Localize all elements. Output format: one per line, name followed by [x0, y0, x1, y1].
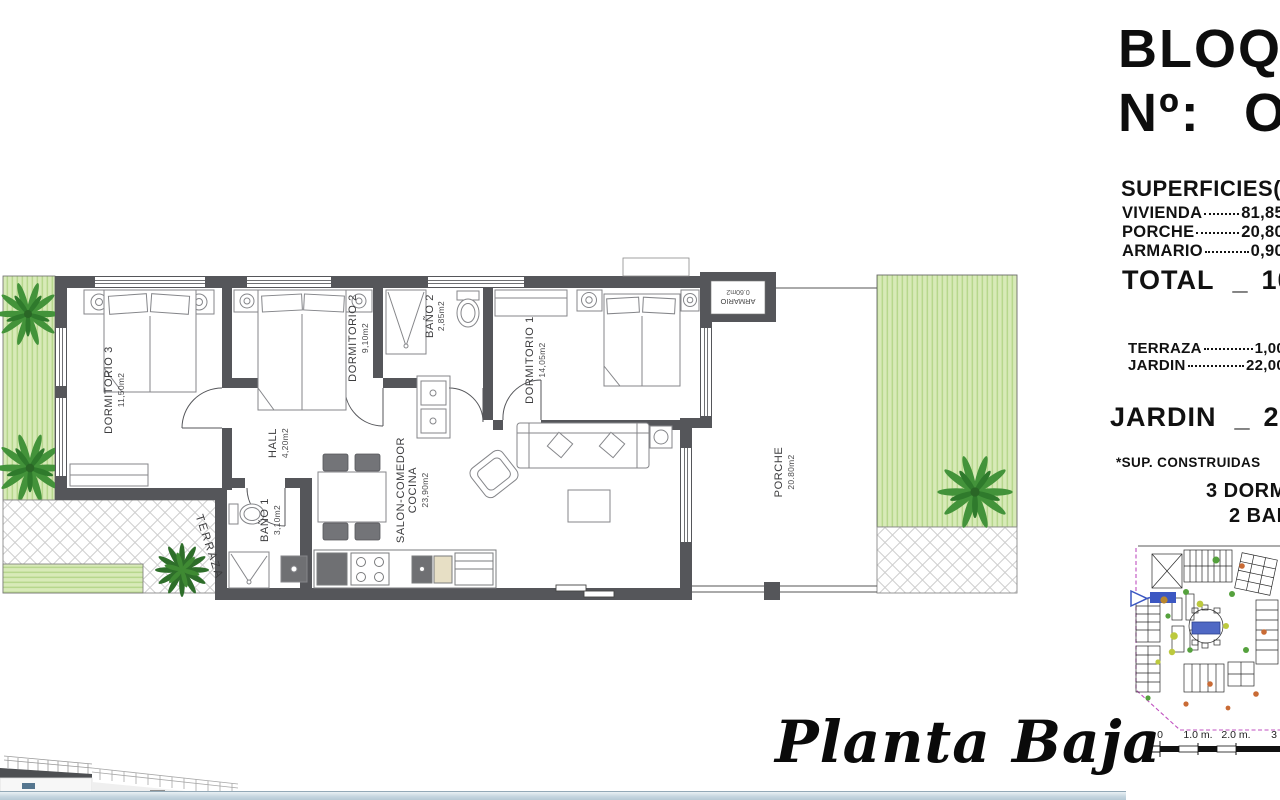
window-ledge — [623, 258, 689, 276]
room-area-hall: 4,20m2 — [280, 428, 290, 458]
room-label-dormitorio3: DORMITORIO 3 — [103, 346, 115, 434]
armario-area: 0.60m2 — [726, 288, 749, 295]
armario-label: ARMARIO — [720, 297, 755, 306]
surface-row: JARDIN 22,00 — [1128, 357, 1280, 374]
dormitorio3-furniture — [70, 290, 214, 486]
porche-boundary — [692, 288, 877, 592]
total-value: 103,5 — [1262, 265, 1280, 296]
feature-bathrooms: 2 BAÑOS — [1229, 505, 1280, 528]
page: ARMARIO 0.60m2 — [0, 0, 1280, 800]
surfaces-table: VIVIENDA 81,85 PORCHE 20,80 ARMARIO 0,90 — [1122, 204, 1280, 261]
total-label: TOTAL — [1122, 265, 1215, 296]
room-area-dormitorio1: 14,05m2 — [537, 342, 547, 377]
room-area-bano1: 3,10m2 — [272, 505, 282, 535]
terraza-area — [3, 500, 217, 597]
jardin-total-value: 23,00 — [1264, 402, 1280, 433]
number-label: Nº: — [1118, 82, 1201, 144]
room-area-bano2: 2,85m2 — [436, 301, 446, 331]
room-label-bano1: BAÑO 1 — [258, 498, 271, 542]
total-separator: _ — [1233, 265, 1248, 296]
room-area-salon: 23,90m2 — [420, 472, 430, 507]
surface-value: 22,00 — [1246, 357, 1280, 374]
dotted-leader — [1205, 251, 1249, 253]
dotted-leader — [1196, 232, 1239, 234]
surface-row: PORCHE 20,80 — [1122, 223, 1280, 242]
surface-value: 1,00 — [1255, 340, 1280, 357]
total-row: TOTAL _ 103,5 — [1122, 265, 1280, 296]
surface-row: TERRAZA 1,00 — [1128, 340, 1280, 357]
surface-value: 0,90 — [1251, 242, 1280, 261]
room-label-salon: SALON-COMEDOR — [395, 437, 407, 543]
room-label-hall: HALL — [267, 428, 279, 458]
room-area-dormitorio2: 9,10m2 — [360, 323, 370, 353]
jardin-total-separator: _ — [1235, 402, 1250, 433]
room-area-dormitorio3: 11,50m2 — [116, 373, 126, 408]
scale-tick-label: 1.0 m. — [1183, 729, 1212, 741]
pool — [1192, 622, 1220, 634]
kitchen-counter — [314, 550, 496, 588]
building-render — [0, 730, 242, 800]
block-title: BLOQ. — [1118, 18, 1280, 80]
surface-value: 20,80 — [1241, 223, 1280, 242]
site-plan-minimap — [1128, 542, 1280, 734]
scale-tick-label: 3 — [1271, 729, 1277, 741]
surface-row: ARMARIO 0,90 — [1122, 242, 1280, 261]
surface-value: 81,85 — [1241, 204, 1280, 223]
room-label-bano2: BAÑO 2 — [423, 294, 436, 338]
building-window — [22, 783, 35, 789]
room-area-porche: 20.80m2 — [786, 454, 796, 489]
salon-furniture — [318, 423, 672, 540]
scale-tick-label: 2.0 m. — [1221, 729, 1250, 741]
surface-label: VIVIENDA — [1122, 204, 1202, 223]
garden-right — [877, 275, 1017, 593]
dotted-leader — [1204, 348, 1253, 350]
room-label-cocina: COCINA — [407, 467, 419, 513]
jardin-total-label: JARDIN — [1110, 402, 1217, 433]
room-label-dormitorio2: DORMITORIO 2 — [347, 294, 359, 382]
dotted-leader — [1188, 365, 1244, 367]
feature-bedrooms: 3 DORMITORIOS — [1206, 480, 1280, 503]
scale-bar-segments — [1160, 746, 1280, 752]
armario-closet: ARMARIO 0.60m2 — [700, 272, 776, 322]
number-value: O — [1244, 82, 1280, 144]
surface-label: ARMARIO — [1122, 242, 1203, 261]
surface-row: VIVIENDA 81,85 — [1122, 204, 1280, 223]
room-label-dormitorio1: DORMITORIO 1 — [524, 316, 536, 404]
surfaces-title: SUPERFICIES(M — [1121, 176, 1280, 202]
jardin-total-row: JARDIN _ 23,00 — [1110, 402, 1280, 433]
dotted-leader — [1204, 213, 1239, 215]
scale-bar: 0 1.0 m. 2.0 m. 3 — [1146, 726, 1280, 770]
room-label-porche: PORCHE — [773, 447, 785, 498]
surface-label: PORCHE — [1122, 223, 1194, 242]
surface-label: TERRAZA — [1128, 340, 1202, 357]
outdoor-table: TERRAZA 1,00 JARDIN 22,00 — [1128, 340, 1280, 374]
plan-title: Planta Baja — [775, 708, 1161, 776]
construidas-note: *SUP. CONSTRUIDAS — [1116, 455, 1261, 470]
floor-plan: ARMARIO 0.60m2 — [0, 250, 1030, 650]
bottom-accent-bar — [0, 791, 1126, 800]
surface-label: JARDIN — [1128, 357, 1186, 374]
